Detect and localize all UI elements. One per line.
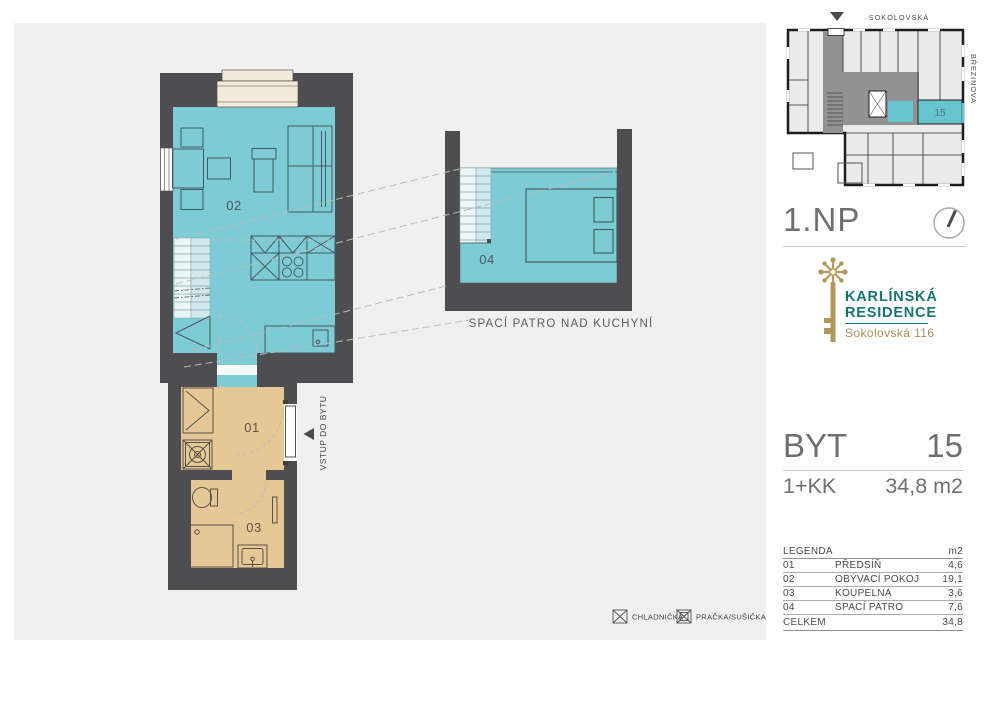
- building-minimap: SOKOLOVSKÁ BŘEZINOVA: [783, 5, 983, 190]
- window-bay: [217, 70, 298, 107]
- passage-02-01: [217, 353, 257, 387]
- minimap-entrance: [828, 29, 844, 36]
- door-opening-01-03: [232, 470, 266, 480]
- sidebar-divider: [783, 246, 966, 247]
- legend-area-header: m2: [949, 546, 964, 557]
- north-marker-icon: [830, 12, 844, 21]
- legend-header: LEGENDA m2: [783, 545, 963, 559]
- unit-divider: [783, 470, 963, 471]
- entry-label: VSTUP DO BYTU: [318, 396, 328, 471]
- brand-address: Sokolovská 116: [845, 326, 935, 340]
- minimap-unit-15-annex: [888, 101, 913, 122]
- loft-wall-bottom: [445, 283, 632, 311]
- unit-type-label: BYT: [783, 428, 847, 464]
- legend-total: CELKEM 34,8: [783, 615, 963, 631]
- minimap-unit-label: 15: [934, 108, 946, 119]
- loft-wall-right: [617, 129, 632, 283]
- loft-wall-left: [445, 131, 460, 283]
- street-label-brezinova: BŘEZINOVA: [969, 54, 978, 104]
- floor-label: 1.NP: [783, 201, 860, 239]
- window-left-icon: [161, 148, 174, 191]
- compass-icon: [928, 202, 972, 246]
- appliance-legend: CHLADNIČKA PRAČKA/SUŠIČKA: [613, 610, 766, 623]
- legend-row: 03 KOUPELNA 3,6: [783, 587, 963, 601]
- fridge-legend-label: CHLADNIČKA: [632, 613, 683, 622]
- room-label-01: 01: [244, 420, 259, 435]
- unit-subheader: 1+KK 34,8 m2: [783, 474, 963, 499]
- legend-row: 02 OBÝVACÍ POKOJ 19,1: [783, 573, 963, 587]
- room-label-04: 04: [479, 252, 494, 267]
- room-label-03: 03: [246, 520, 261, 535]
- legend-title: LEGENDA: [783, 546, 833, 557]
- washer-legend-label: PRAČKA/SUŠIČKA: [696, 613, 766, 622]
- fridge-legend-icon: [613, 610, 627, 623]
- unit-area: 34,8 m2: [885, 474, 963, 499]
- brochure-page: VSTUP DO BYTU: [0, 0, 1000, 726]
- room-label-02: 02: [226, 198, 241, 213]
- unit-layout: 1+KK: [783, 474, 836, 499]
- brand-name-line1: KARLÍNSKÁ: [845, 290, 935, 306]
- legend-table: LEGENDA m2 01 PŘEDSÍŇ 4,6 02 OBÝVACÍ POK…: [783, 545, 963, 631]
- minimap-unit-window: [962, 103, 964, 123]
- brand-name-line2: RESIDENCE: [845, 306, 935, 322]
- legend-row: 04 SPACÍ PATRO 7,6: [783, 601, 963, 615]
- loft-caption: SPACÍ PATRO NAD KUCHYNÍ: [469, 317, 654, 330]
- minimap-corridor: [823, 31, 843, 133]
- legend-row: 01 PŘEDSÍŇ 4,6: [783, 559, 963, 573]
- entry-arrow-icon: [304, 428, 315, 440]
- loft-staircase: [460, 168, 491, 243]
- main-floorplan: VSTUP DO BYTU: [14, 23, 766, 640]
- loft-plan: [445, 129, 632, 311]
- minimap-elevator: [869, 91, 886, 117]
- unit-number: 15: [926, 428, 963, 464]
- brand-logo: KARLÍNSKÁ RESIDENCE Sokolovská 116: [845, 290, 935, 340]
- street-label-sokolovska: SOKOLOVSKÁ: [869, 13, 930, 22]
- brand-rule: [845, 323, 928, 324]
- unit-header: BYT 15: [783, 428, 963, 464]
